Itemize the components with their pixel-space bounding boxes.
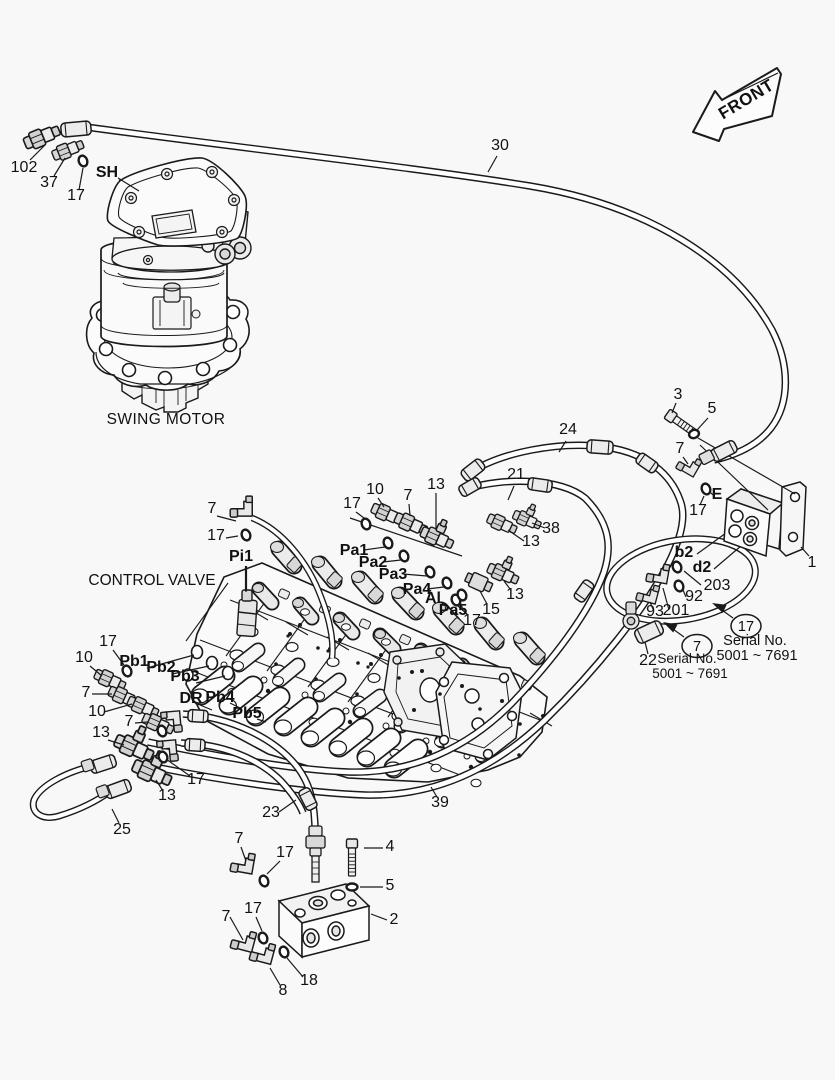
- svg-text:39: 39: [431, 794, 449, 811]
- svg-text:CONTROL VALVE: CONTROL VALVE: [88, 572, 215, 589]
- svg-text:Serial No.: Serial No.: [657, 651, 716, 666]
- svg-text:5001 ~ 7691: 5001 ~ 7691: [652, 666, 727, 681]
- svg-text:17: 17: [343, 495, 361, 512]
- svg-text:102: 102: [11, 159, 38, 176]
- svg-text:10: 10: [366, 481, 384, 498]
- svg-text:93: 93: [646, 603, 664, 620]
- svg-text:10: 10: [88, 703, 106, 720]
- svg-text:17: 17: [67, 187, 85, 204]
- svg-text:5001 ~ 7691: 5001 ~ 7691: [716, 648, 797, 664]
- svg-text:7: 7: [676, 440, 685, 457]
- svg-text:17: 17: [689, 502, 707, 519]
- svg-text:37: 37: [40, 174, 58, 191]
- svg-text:18: 18: [300, 972, 318, 989]
- svg-text:b2: b2: [675, 544, 694, 561]
- svg-text:15: 15: [482, 601, 500, 618]
- svg-text:30: 30: [491, 137, 509, 154]
- svg-text:SWING MOTOR: SWING MOTOR: [107, 411, 226, 428]
- svg-text:5: 5: [708, 400, 717, 417]
- svg-text:17: 17: [276, 844, 294, 861]
- svg-text:13: 13: [522, 533, 540, 550]
- svg-text:7: 7: [235, 830, 244, 847]
- svg-text:7: 7: [125, 713, 134, 730]
- svg-text:13: 13: [506, 586, 524, 603]
- svg-text:25: 25: [113, 821, 131, 838]
- svg-text:1: 1: [808, 554, 817, 571]
- svg-text:2: 2: [390, 911, 399, 928]
- svg-text:17: 17: [207, 527, 225, 544]
- svg-text:Pb1: Pb1: [119, 653, 148, 670]
- svg-text:Pb3: Pb3: [170, 668, 199, 685]
- svg-text:13: 13: [427, 476, 445, 493]
- svg-text:3: 3: [674, 386, 683, 403]
- svg-text:d2: d2: [693, 559, 712, 576]
- svg-text:10: 10: [75, 649, 93, 666]
- svg-text:17: 17: [99, 633, 117, 650]
- svg-text:203: 203: [704, 577, 731, 594]
- svg-text:7: 7: [404, 487, 413, 504]
- svg-text:7: 7: [82, 684, 91, 701]
- svg-text:DR: DR: [179, 690, 203, 707]
- svg-text:Pa5: Pa5: [439, 602, 468, 619]
- svg-text:Pi1: Pi1: [229, 548, 253, 565]
- svg-text:7: 7: [222, 908, 231, 925]
- svg-text:21: 21: [507, 466, 525, 483]
- svg-text:7: 7: [208, 500, 217, 517]
- svg-text:22: 22: [639, 652, 657, 669]
- svg-text:17: 17: [187, 771, 205, 788]
- svg-text:17: 17: [244, 900, 262, 917]
- svg-text:13: 13: [92, 724, 110, 741]
- svg-text:SH: SH: [96, 164, 118, 181]
- svg-text:Serial No.: Serial No.: [723, 633, 787, 649]
- svg-text:4: 4: [386, 838, 395, 855]
- svg-text:201: 201: [663, 602, 690, 619]
- svg-text:23: 23: [262, 804, 280, 821]
- svg-text:24: 24: [559, 421, 577, 438]
- svg-text:13: 13: [158, 787, 176, 804]
- svg-text:5: 5: [386, 877, 395, 894]
